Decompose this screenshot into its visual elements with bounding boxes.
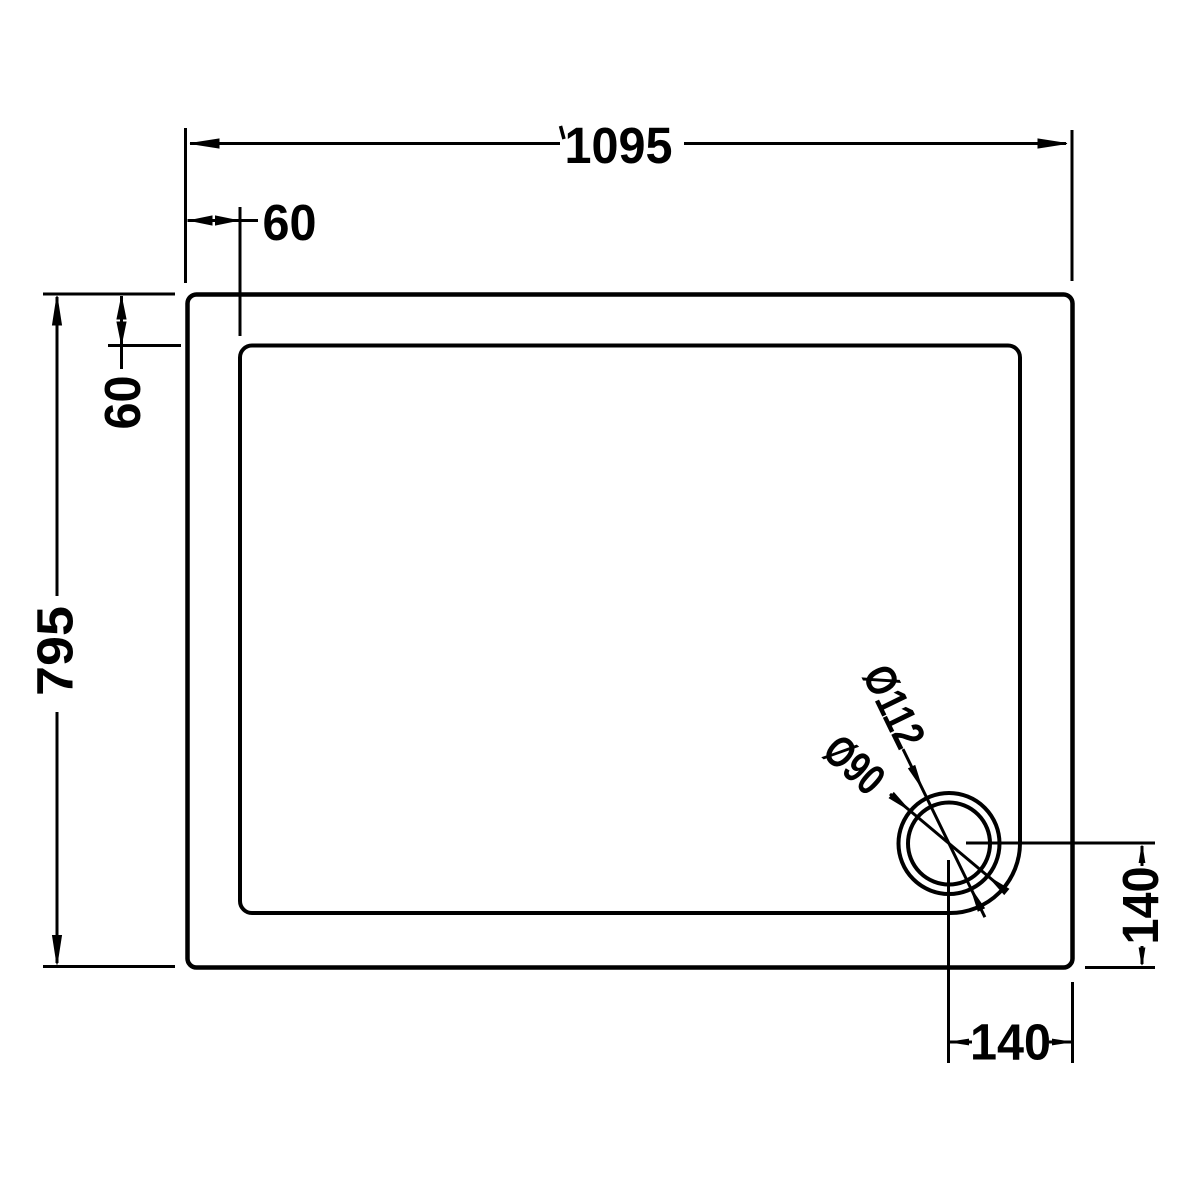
svg-text:140: 140 [970, 1014, 1051, 1071]
svg-text:60: 60 [94, 376, 151, 430]
svg-text:140: 140 [1112, 867, 1169, 945]
svg-text:1095: 1095 [565, 117, 673, 174]
svg-text:795: 795 [27, 606, 84, 696]
svg-text:60: 60 [263, 194, 317, 251]
